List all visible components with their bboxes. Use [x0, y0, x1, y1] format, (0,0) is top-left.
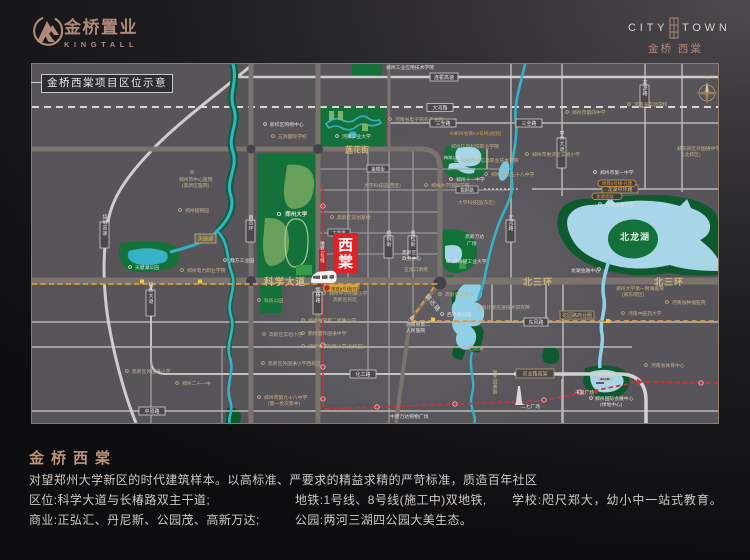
svg-text:高新区外国语小学西校区: 高新区外国语小学西校区: [268, 360, 321, 367]
svg-text:雪松街: 雪松街: [410, 231, 416, 248]
svg-text:农业路高架: 农业路高架: [522, 371, 547, 378]
svg-text:高新区管委会: 高新区管委会: [445, 291, 474, 298]
svg-text:N: N: [705, 75, 708, 80]
svg-text:中州大道: 中州大道: [559, 129, 565, 153]
svg-text:⊕郑州地铁K2号线(规划): ⊕郑州地铁K2号线(规划): [449, 130, 502, 137]
svg-text:龙湖湿地公园: 龙湖湿地公园: [605, 201, 634, 208]
svg-text:长椿路: 长椿路: [315, 286, 321, 304]
svg-text:高新区双创基地: 高新区双创基地: [337, 214, 371, 221]
svg-text:新校区购物中心: 新校区购物中心: [270, 121, 304, 128]
svg-text:高新区: 高新区: [402, 249, 417, 256]
svg-text:政务中心: 政务中心: [402, 255, 421, 262]
svg-text:西流湖: 西流湖: [469, 345, 484, 352]
svg-text:大学科技园(西区): 大学科技园(西区): [364, 182, 401, 189]
svg-text:郑州大学: 郑州大学: [285, 210, 308, 218]
svg-text:郑州信息科技职业学院: 郑州信息科技职业学院: [451, 143, 499, 150]
svg-text:大河路: 大河路: [432, 105, 447, 112]
svg-text:河南省第二: 河南省第二: [406, 321, 430, 328]
svg-text:高新区实验小学: 高新区实验小学: [269, 331, 303, 338]
svg-text:地铁8号线(在建): 地铁8号线(在建): [331, 286, 363, 293]
svg-text:高新区外国语小学: 高新区外国语小学: [132, 368, 171, 375]
svg-text:北三环: 北三环: [654, 276, 684, 287]
svg-text:郑州国际会展中心: 郑州国际会展中心: [595, 395, 634, 402]
svg-text:郑州十一中学: 郑州十一中学: [456, 176, 485, 183]
svg-text:二七广场: 二七广场: [521, 403, 540, 410]
svg-text:天健湖公园: 天健湖公园: [135, 264, 159, 271]
svg-text:河南省实验学校: 河南省实验学校: [634, 101, 668, 108]
svg-text:西: 西: [338, 237, 353, 254]
svg-text:科学大道: 科学大道: [264, 276, 306, 288]
svg-text:郑东新区外国语中学: 郑东新区外国语中学: [677, 145, 718, 152]
svg-text:地铁1号线: 地铁1号线: [320, 240, 326, 263]
svg-text:莲花街: 莲花街: [345, 145, 369, 155]
svg-text:郑州工业应用技术学院: 郑州工业应用技术学院: [386, 64, 434, 71]
svg-text:郑州市惠济区实验小学: 郑州市惠济区实验小学: [532, 151, 580, 158]
svg-text:科新大道: 科新大道: [148, 281, 154, 305]
svg-text:五洲国际学校: 五洲国际学校: [278, 133, 307, 140]
svg-text:高新万达: 高新万达: [465, 233, 484, 240]
svg-text:连霍高速: 连霍高速: [434, 74, 454, 81]
svg-text:(北校区): (北校区): [683, 151, 701, 158]
svg-text:中原路: 中原路: [144, 408, 159, 415]
svg-text:郑州市中心医院: 郑州市中心医院: [179, 176, 213, 183]
svg-text:郑州市第九十八中学: 郑州市第九十八中学: [264, 394, 307, 401]
svg-text:郑州中学附属小学(北校区): 郑州中学附属小学(北校区): [308, 343, 364, 350]
svg-text:郑州轻工业大学: 郑州轻工业大学: [453, 258, 487, 265]
svg-text:郑州大学国际学院: 郑州大学国际学院: [431, 182, 470, 189]
svg-text:北三环: 北三环: [523, 276, 553, 287]
svg-text:郑州市第五十八中学: 郑州市第五十八中学: [491, 171, 534, 178]
svg-text:龙源路: 龙源路: [642, 79, 648, 97]
svg-text:河南工业大学: 河南工业大学: [342, 133, 371, 140]
svg-text:国艺城商圈: 国艺城商圈: [492, 370, 497, 395]
svg-text:绕城高速: 绕城高速: [102, 213, 108, 237]
svg-text:北龙湖: 北龙湖: [620, 231, 650, 242]
svg-text:龙湖中环路: 龙湖中环路: [607, 186, 632, 193]
svg-text:郑州市第一中学: 郑州市第一中学: [600, 169, 634, 176]
svg-text:(郑东院区): (郑东院区): [622, 291, 645, 298]
svg-text:科技公园: 科技公园: [264, 297, 283, 304]
svg-text:河南省电子商务产业园: 河南省电子商务产业园: [395, 116, 443, 123]
svg-text:郑州市第四中学: 郑州市第四中学: [572, 109, 606, 116]
svg-text:地铁4号线·在建: 地铁4号线·在建: [602, 180, 633, 187]
svg-text:东风路: 东风路: [528, 319, 543, 326]
svg-text:五龙口南路: 五龙口南路: [404, 266, 428, 273]
svg-text:中原万达购物广场: 中原万达购物广场: [390, 413, 429, 420]
svg-text:人民医院: 人民医院: [406, 327, 425, 334]
svg-text:棠: 棠: [337, 253, 354, 271]
svg-text:三全路: 三全路: [521, 120, 536, 127]
svg-text:花园路商业圈: 花园路商业圈: [562, 312, 592, 319]
svg-text:西流湖公园: 西流湖公园: [447, 311, 471, 318]
svg-text:河南中医药大学: 河南中医药大学: [628, 310, 662, 317]
svg-text:郑州电力职业学院: 郑州电力职业学院: [187, 267, 226, 274]
svg-text:郑州大学第一附属医院: 郑州大学第一附属医院: [616, 285, 664, 292]
svg-text:天河路: 天河路: [508, 215, 514, 232]
svg-text:郑州二十一中: 郑州二十一中: [182, 380, 211, 387]
svg-text:天健湖: 天健湖: [198, 236, 213, 243]
svg-text:龙湖北站: 龙湖北站: [596, 193, 614, 200]
svg-text:化工路: 化工路: [355, 371, 370, 378]
svg-text:广场: 广场: [467, 240, 477, 247]
svg-text:河南省体育中心: 河南省体育中心: [651, 362, 685, 369]
svg-text:龙湖金融中心: 龙湖金融中心: [571, 267, 600, 274]
svg-text:(高新区医院): (高新区医院): [182, 182, 210, 189]
svg-text:如意湖: 如意湖: [598, 376, 613, 383]
svg-text:郑州电子信息职业技术学院: 郑州电子信息职业技术学院: [461, 157, 519, 164]
svg-text:郑州植物园: 郑州植物园: [185, 207, 209, 214]
svg-text:梧桐街: 梧桐街: [386, 230, 392, 248]
svg-text:郑州计量先进技术研究院: 郑州计量先进技术研究院: [477, 304, 530, 311]
svg-text:河南省肿瘤医院: 河南省肿瘤医院: [672, 299, 706, 306]
svg-text:金梭街: 金梭街: [371, 166, 385, 173]
svg-text:大学科技园(东区): 大学科技园(东区): [458, 199, 495, 206]
svg-text:(第一批次高中): (第一批次高中): [268, 400, 300, 407]
svg-text:梅湖公园: 梅湖公园: [444, 154, 460, 160]
svg-text:高新区校区: 高新区校区: [333, 296, 357, 303]
svg-text:朗悦慧外国语中学: 朗悦慧外国语中学: [308, 330, 347, 337]
svg-text:魏方工业园: 魏方工业园: [230, 257, 254, 264]
svg-text:千玺广场: 千玺广场: [575, 389, 594, 396]
svg-text:西四环: 西四环: [248, 215, 254, 232]
svg-text:(绿地中心): (绿地中心): [600, 401, 623, 408]
svg-text:郑州中学第二附属小学: 郑州中学第二附属小学: [308, 317, 356, 324]
